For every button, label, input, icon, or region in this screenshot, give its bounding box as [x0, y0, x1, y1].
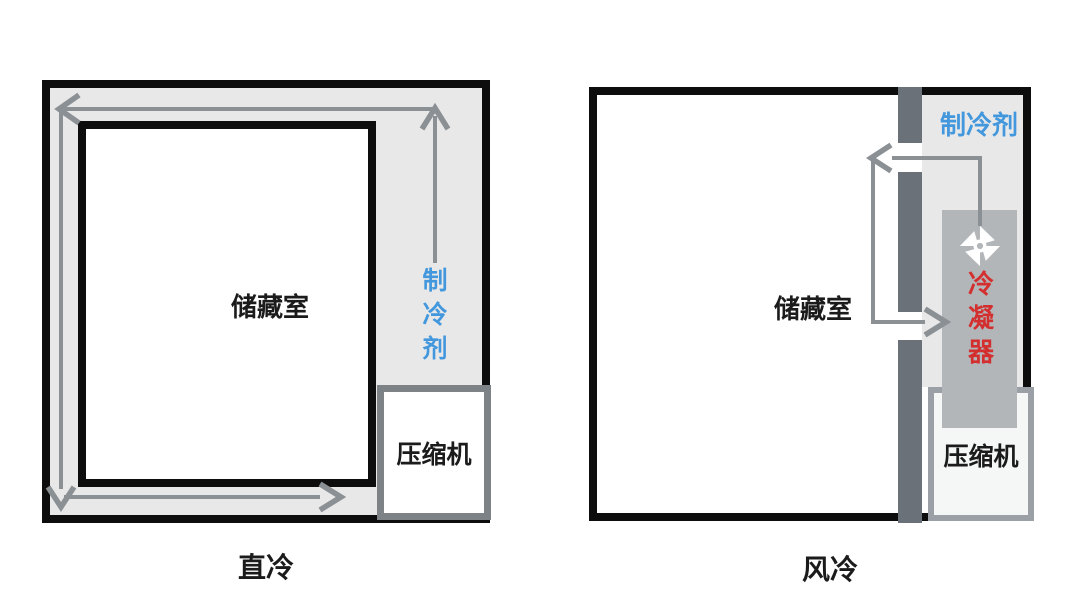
cooling-comparison-diagram: 储藏室 制冷剂 压缩机 直冷 压缩机 冷凝器 制冷剂 储藏室 风冷	[0, 0, 1080, 608]
refrigerant-label: 制冷剂	[419, 267, 447, 369]
partition-wall-top	[898, 87, 922, 143]
condenser-box: 冷凝器	[942, 210, 1017, 428]
storage-room-label: 储藏室	[170, 287, 370, 324]
storage-room-label: 储藏室	[713, 289, 913, 326]
compressor-box: 压缩机	[377, 385, 491, 520]
compressor-label: 压缩机	[943, 437, 1018, 473]
air-cooling-caption: 风冷	[730, 548, 930, 588]
refrigerant-label: 制冷剂	[927, 105, 1031, 142]
direct-cooling-caption: 直冷	[166, 546, 366, 586]
condenser-label: 冷凝器	[966, 270, 994, 372]
pinwheel-fan-icon	[957, 223, 1003, 269]
partition-wall-bottom	[898, 340, 922, 523]
compressor-label: 压缩机	[396, 435, 471, 471]
